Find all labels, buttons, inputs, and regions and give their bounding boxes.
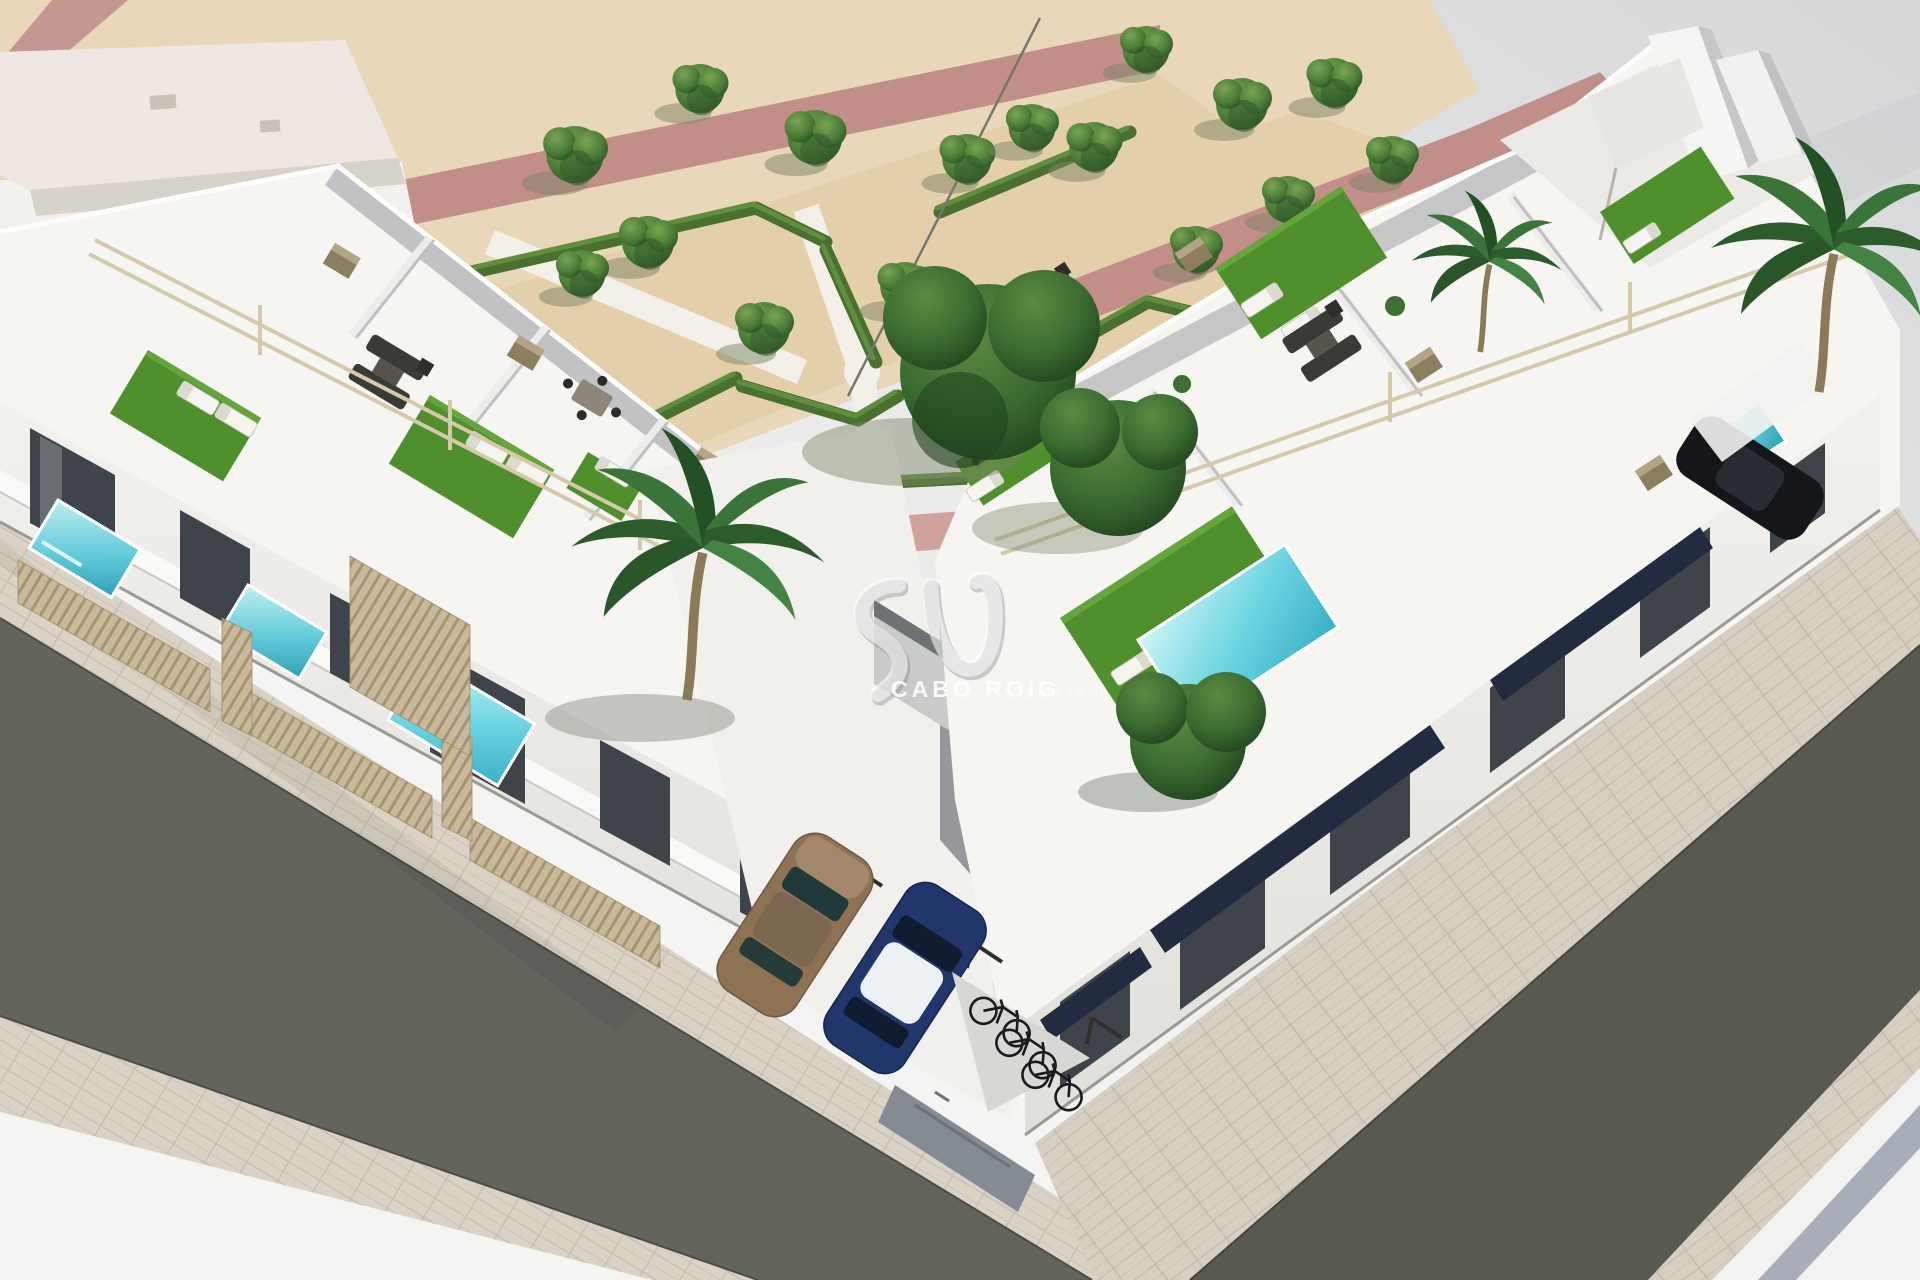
watermark-tagline: Desde 1970	[1013, 684, 1104, 701]
palm-shadow	[545, 694, 735, 742]
render-canvas: CABO ROIG Desde 1970	[0, 0, 1920, 1280]
architectural-render: CABO ROIG Desde 1970	[0, 0, 1920, 1280]
